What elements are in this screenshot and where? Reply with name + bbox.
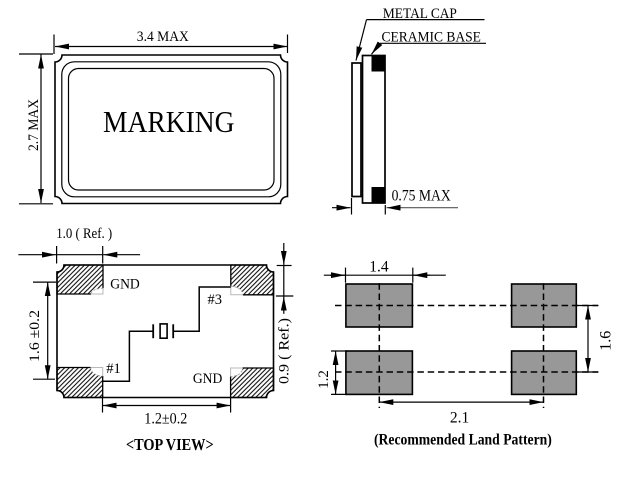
- svg-text:2.7 MAX: 2.7 MAX: [26, 99, 42, 151]
- svg-text:(Recommended Land Pattern): (Recommended Land Pattern): [374, 431, 552, 448]
- svg-text:1.2±0.2: 1.2±0.2: [144, 410, 187, 427]
- svg-text:GND: GND: [193, 371, 223, 387]
- svg-text:MARKING: MARKING: [103, 104, 235, 139]
- svg-text:3.4 MAX: 3.4 MAX: [137, 29, 189, 45]
- svg-text:#3: #3: [208, 292, 223, 308]
- svg-text:1.6 ±0.2: 1.6 ±0.2: [27, 310, 43, 362]
- svg-text:1.6: 1.6: [598, 331, 615, 351]
- svg-text:1.2: 1.2: [316, 370, 332, 389]
- svg-text:1.0 ( Ref. ): 1.0 ( Ref. ): [56, 226, 112, 242]
- svg-text:2.1: 2.1: [450, 409, 469, 426]
- svg-text:<TOP VIEW>: <TOP VIEW>: [126, 435, 214, 454]
- svg-text:0.75 MAX: 0.75 MAX: [392, 188, 452, 205]
- svg-text:0.9 ( Ref.): 0.9 ( Ref.): [277, 318, 293, 384]
- svg-text:1.4: 1.4: [369, 259, 389, 276]
- svg-text:GND: GND: [110, 277, 140, 293]
- svg-text:#1: #1: [106, 361, 121, 377]
